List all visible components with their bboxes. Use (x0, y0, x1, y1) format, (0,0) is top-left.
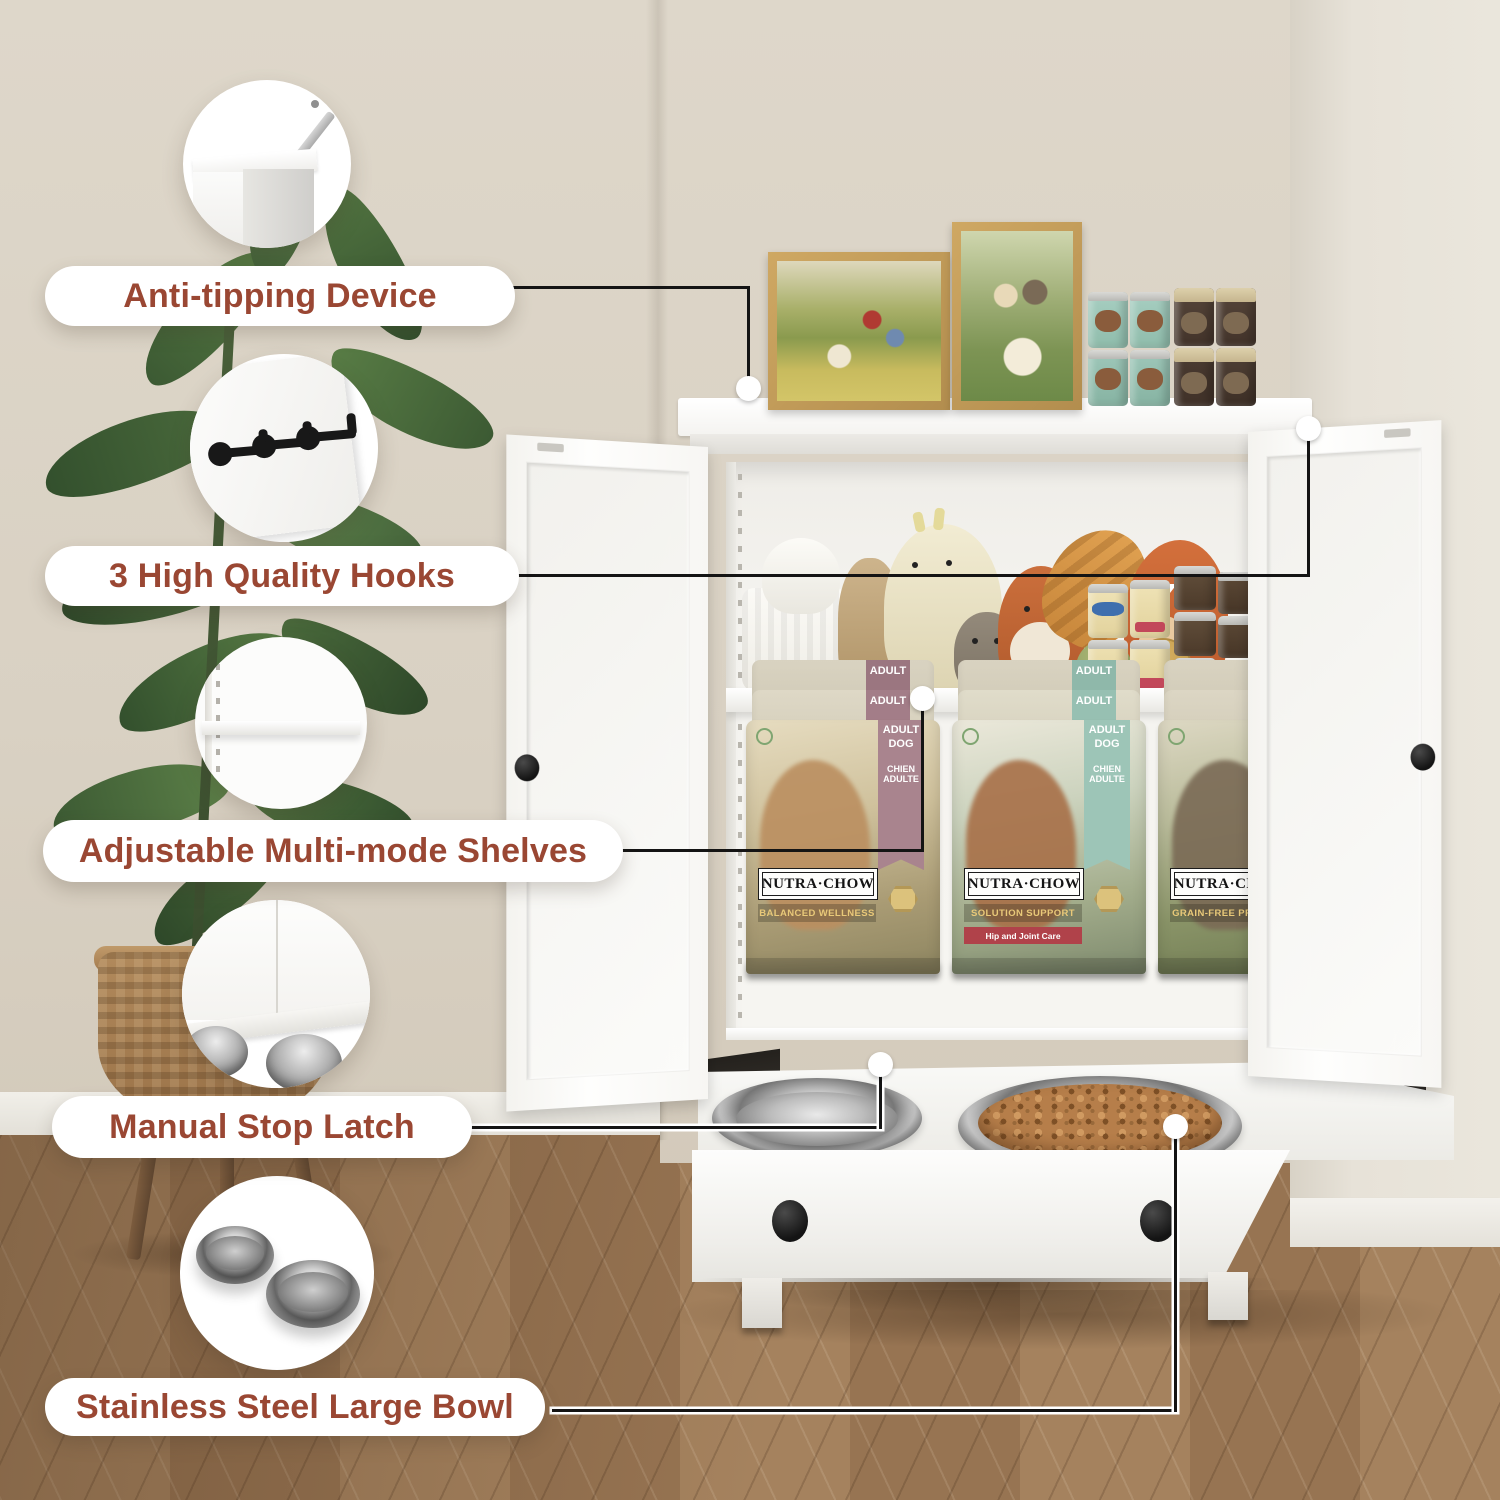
callout-pill-shelves: Adjustable Multi-mode Shelves (43, 820, 623, 882)
callout-line (552, 1409, 1177, 1412)
callout-dot (868, 1052, 893, 1077)
callout-dot (910, 686, 935, 711)
steel-bowls-icon (180, 1176, 374, 1370)
callout-line (1307, 430, 1310, 577)
callout-label: Manual Stop Latch (109, 1108, 415, 1147)
wall-hooks-icon (190, 354, 378, 542)
callout-label: Anti-tipping Device (123, 277, 437, 316)
stop-latch-icon (182, 900, 370, 1088)
dog-food-bag: ADULTDOGCHIENADULTE NUTRA·CHOW SOLUTION … (952, 720, 1146, 974)
anti-tip-bracket-icon (183, 80, 351, 248)
callout-pill-latch: Manual Stop Latch (52, 1096, 472, 1158)
bag-variant: BALANCED WELLNESS (758, 904, 876, 922)
adjustable-shelf-icon (195, 637, 367, 809)
photo-frame-portrait (952, 222, 1082, 410)
callout-line (505, 286, 750, 289)
callout-label: Stainless Steel Large Bowl (76, 1388, 514, 1427)
callout-line (747, 286, 750, 386)
left-door (506, 434, 708, 1111)
callout-pill-bowl: Stainless Steel Large Bowl (45, 1378, 545, 1436)
right-door-knob (1411, 744, 1436, 771)
callout-line (1174, 1128, 1177, 1412)
callout-line (462, 1126, 882, 1129)
bag-variant: SOLUTION SUPPORT (964, 904, 1082, 922)
callout-label: Adjustable Multi-mode Shelves (79, 832, 587, 871)
callout-label: 3 High Quality Hooks (109, 557, 455, 596)
cabinet-foot (742, 1278, 782, 1328)
callout-dot (1163, 1114, 1188, 1139)
bag-brand: NUTRA·CHOW (758, 868, 878, 900)
baseboard-right (1290, 1198, 1500, 1248)
callout-line (505, 574, 1310, 577)
callout-pill-hooks: 3 High Quality Hooks (45, 546, 519, 606)
cabinet-interior: ADULT ADULT ADULTDOGCHIENADULTE NUTRA·CH… (726, 462, 1268, 1040)
callout-line (618, 849, 924, 852)
left-door-knob (515, 754, 540, 781)
callout-dot (736, 376, 761, 401)
callout-line (879, 1068, 882, 1129)
product-infographic: ADULT ADULT ADULTDOGCHIENADULTE NUTRA·CH… (0, 0, 1500, 1500)
dog-food-bag: ADULTDOGCHIENADULTE NUTRA·CHOW BALANCED … (746, 720, 940, 974)
cabinet-foot (1208, 1272, 1248, 1320)
bag-sub-label: Hip and Joint Care (964, 927, 1082, 944)
right-door (1248, 420, 1441, 1088)
drawer-knob-right (1140, 1200, 1176, 1242)
drawer-knob-left (772, 1200, 808, 1242)
callout-line (921, 700, 924, 852)
callout-dot (1296, 416, 1321, 441)
photo-frame-landscape (768, 252, 950, 410)
bottom-shelf (726, 1028, 1268, 1040)
callout-pill-anti-tipping: Anti-tipping Device (45, 266, 515, 326)
bag-brand: NUTRA·CHOW (964, 868, 1084, 900)
